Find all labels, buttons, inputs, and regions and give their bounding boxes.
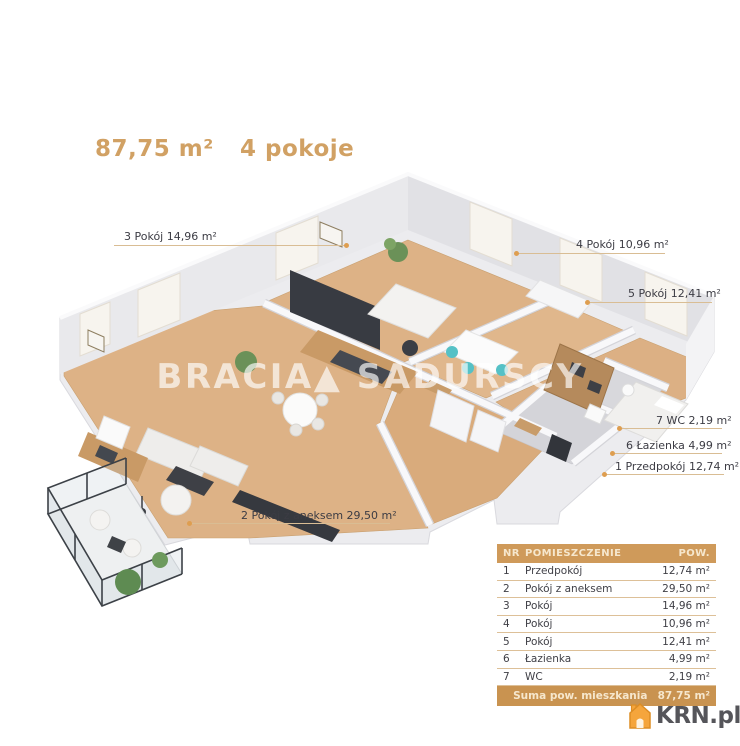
leader-line-room-3	[114, 245, 347, 246]
table-row: 4 Pokój 10,96 m²	[497, 616, 716, 634]
leader-dot-room-3	[344, 243, 349, 248]
col-name: POMIESZCZENIE	[525, 548, 679, 559]
label-wc-7: 7 WC 2,19 m²	[656, 414, 732, 427]
label-room-2: 2 Pokój z aneksem 29,50 m²	[241, 509, 397, 522]
label-room-5: 5 Pokój 12,41 m²	[628, 287, 721, 300]
leader-line-hall-1	[605, 474, 724, 475]
leader-line-room-2	[190, 523, 390, 524]
leader-line-bathroom-6	[613, 453, 722, 454]
krn-logo: KRN.pl	[627, 701, 740, 730]
house-icon	[627, 701, 653, 730]
label-room-4: 4 Pokój 10,96 m²	[576, 238, 669, 251]
leader-line-room-5	[588, 302, 712, 303]
rooms-count-heading: 4 pokoje	[240, 136, 354, 162]
balcony-plant-2	[152, 552, 168, 568]
col-nr: NR	[503, 548, 525, 559]
agency-watermark: BRACIA▲ SADURSCY	[156, 357, 583, 397]
balcony-chair-1	[90, 510, 110, 530]
leader-dot-bathroom-6	[610, 451, 615, 456]
label-room-3: 3 Pokój 14,96 m²	[124, 230, 217, 243]
leader-line-wc-7	[620, 428, 722, 429]
leader-dot-room-4	[514, 251, 519, 256]
leader-dot-wc-7	[617, 426, 622, 431]
toilet-wc	[622, 384, 634, 396]
table-row: 3 Pokój 14,96 m²	[497, 598, 716, 616]
rooms-table-header: NR POMIESZCZENIE POW.	[497, 544, 716, 563]
floorplan-page: 87,75 m² 4 pokoje BRACIA▲ SADURSCY 3 Pok…	[0, 0, 740, 746]
leader-line-room-4	[517, 253, 665, 254]
table-row: 5 Pokój 12,41 m²	[497, 633, 716, 651]
label-bathroom-6: 6 Łazienka 4,99 m²	[626, 439, 732, 452]
leader-dot-hall-1	[602, 472, 607, 477]
balcony-chair-2	[123, 539, 141, 557]
balcony-plant-1	[115, 569, 141, 595]
rooms-table: NR POMIESZCZENIE POW. 1 Przedpokój 12,74…	[497, 544, 716, 706]
leader-dot-room-2	[187, 521, 192, 526]
table-row: 6 Łazienka 4,99 m²	[497, 651, 716, 669]
round-armchair	[161, 485, 191, 515]
table-row: 7 WC 2,19 m²	[497, 669, 716, 687]
plant-corner-2	[384, 238, 396, 250]
leader-dot-room-5	[585, 300, 590, 305]
total-area-heading: 87,75 m²	[95, 136, 214, 162]
label-hall-1: 1 Przedpokój 12,74 m²	[615, 460, 739, 473]
desk-chair-room3	[402, 340, 418, 356]
col-area: POW.	[679, 548, 710, 559]
table-row: 1 Przedpokój 12,74 m²	[497, 563, 716, 581]
krn-logo-text: KRN.pl	[656, 703, 740, 729]
table-row: 2 Pokój z aneksem 29,50 m²	[497, 581, 716, 599]
